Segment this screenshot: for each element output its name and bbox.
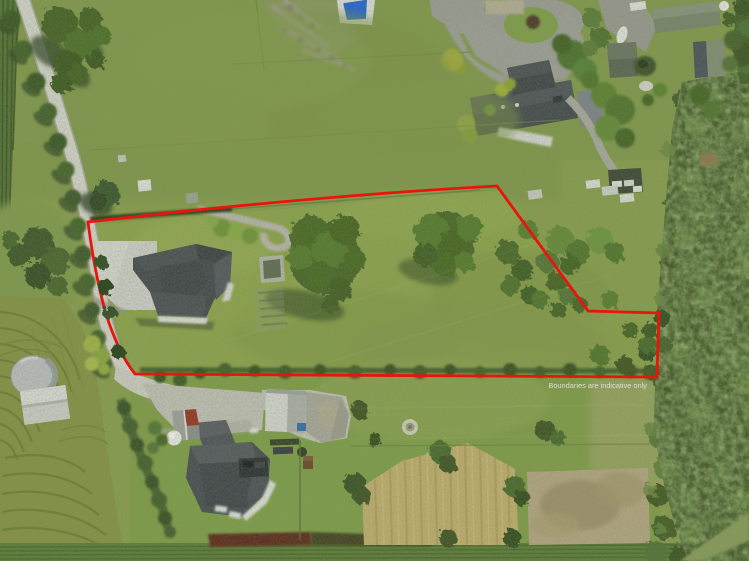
svg-text:Boundaries are indicative only: Boundaries are indicative only — [548, 381, 647, 390]
